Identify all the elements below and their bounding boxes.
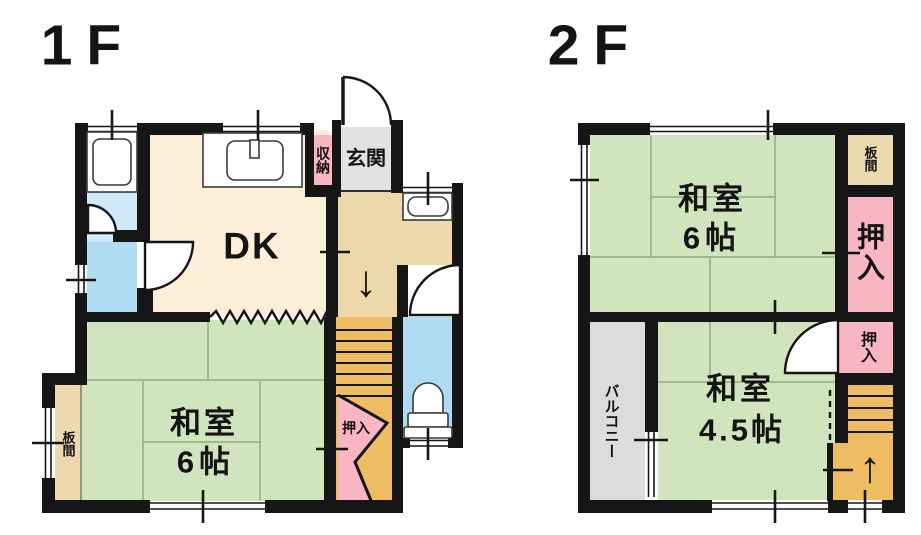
oshiire-upper-2f-label: 押入: [855, 222, 883, 284]
washitsu-1f-size-label: 6帖: [177, 447, 235, 478]
floor1-title: 1F: [41, 18, 136, 75]
kitchen-faucet: [250, 140, 259, 158]
entrance-door-arc: [343, 77, 391, 125]
stairs-thin-wall: [827, 443, 833, 502]
toilet-tank: [408, 413, 448, 427]
itanoma-1f-label: 板間: [62, 431, 75, 457]
floor1-plan: [32, 77, 463, 523]
oshiire-lower-2f-label: 押入: [858, 331, 874, 363]
washitsu45-2f-size-label: 4.5帖: [699, 415, 785, 446]
storage-label: 収納: [316, 146, 330, 174]
floorplan-canvas: [0, 0, 921, 535]
floor2-title: 2F: [548, 18, 643, 75]
toilet-bowl: [413, 383, 443, 413]
washitsu-1f-name-label: 和室: [170, 408, 238, 439]
dk-room-label: DK: [223, 228, 280, 265]
washitsu6-2f-name-label: 和室: [678, 184, 746, 215]
stairs-down-icon: ↓: [355, 260, 377, 304]
washitsu45-2f-name-label: 和室: [706, 374, 774, 405]
floor2-plan: [570, 110, 905, 523]
itanoma-2f-label: 板間: [864, 146, 877, 172]
oshiire-1f-label: 押入: [342, 421, 370, 435]
bathroom-area: [87, 242, 137, 314]
toilet-door-arc: [410, 265, 460, 315]
stairs-2f-upper: [848, 385, 893, 445]
genkan-label: 玄関: [346, 149, 386, 169]
balcony-label: バルコニー: [604, 384, 619, 459]
washitsu6-2f-size-label: 6帖: [683, 223, 741, 254]
floorplan-page: 1F 2F DK 玄関 収納 和室 6帖 板間 押入 ↓ 和室 6帖 板間 押入…: [0, 0, 921, 535]
stairs-up-icon: ↑: [859, 446, 881, 490]
washing-machine: [93, 139, 131, 185]
